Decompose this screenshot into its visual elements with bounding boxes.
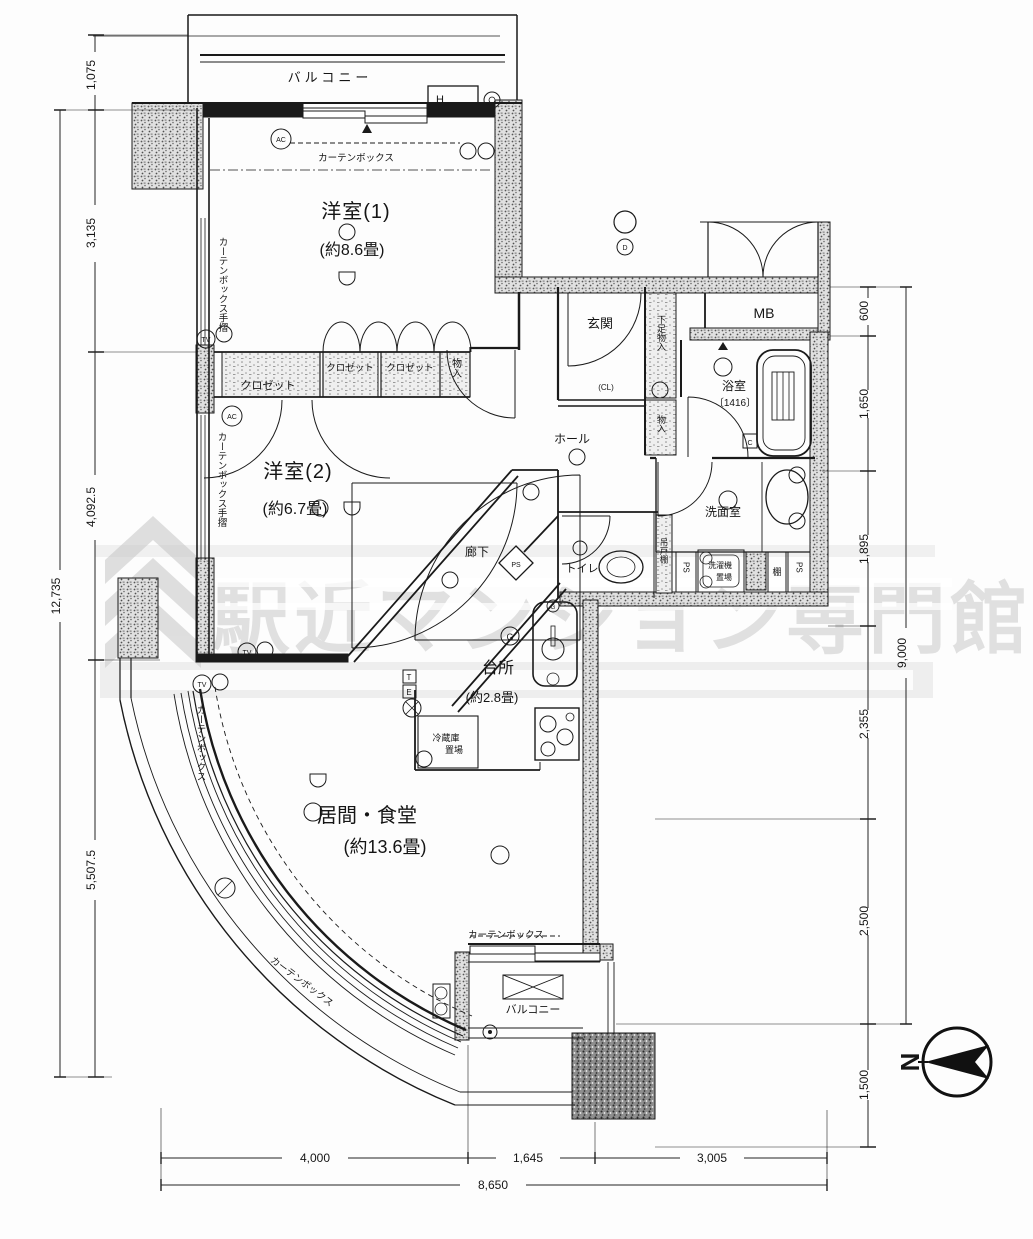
wall-washroom-bottom (560, 592, 828, 606)
watermark: 駅近マンション専門館 (95, 516, 1032, 698)
dim-bottom-total: 8,650 (478, 1178, 508, 1192)
shower-icon (714, 358, 732, 376)
closet-c-label: クロゼット (386, 362, 434, 374)
dim-right-0: 600 (857, 301, 871, 321)
h-letter: H (436, 94, 444, 106)
closet-b-body (323, 352, 378, 397)
hall-label: ホール (554, 432, 590, 446)
t-letter: T (407, 673, 412, 682)
g-letter: G (506, 632, 513, 642)
dim-right-total: 9,000 (895, 638, 909, 668)
closet-b-label: クロゼット (326, 362, 374, 374)
hatched-block (572, 1033, 655, 1119)
toilet-label: トイレ (566, 563, 599, 575)
north-letter: N (895, 1053, 925, 1072)
bath-label: 浴室 (722, 378, 746, 393)
compass: N (895, 1028, 991, 1096)
wall-top-entrance (495, 277, 828, 293)
dim-right-1: 1,650 (857, 389, 871, 419)
shelf-label: 棚 (772, 566, 781, 577)
wall-right-outer (818, 222, 830, 332)
ps-diamond-label: PS (511, 562, 521, 569)
watermark-band-knockout (120, 670, 913, 690)
dim-bottom-0: 4,000 (300, 1151, 330, 1165)
tv-letter: TV (198, 682, 207, 689)
dim-right-2: 1,895 (857, 534, 871, 564)
kitchen-size-label: (約2.8畳) (466, 690, 519, 705)
living-label: 居間・食堂 (317, 804, 417, 827)
floor-plan-page: 駅近マンション専門館 (0, 0, 1033, 1239)
dim-right-4: 2,500 (857, 906, 871, 936)
wall-segment (746, 552, 766, 590)
hanging-shelf-label: 吊戸棚 (659, 538, 669, 564)
ps-label: PS (682, 562, 691, 573)
wall-pier (132, 103, 203, 189)
wall-pier (495, 100, 522, 292)
c-letter: C (747, 440, 752, 447)
fridge-label-line1: 冷蔵庫 (432, 732, 459, 743)
bath-size-label: 〔1416〕 (714, 397, 756, 409)
corridor-label: 廊下 (465, 544, 489, 559)
watermark-stripe (212, 578, 952, 587)
dim-bottom-1: 1,645 (513, 1151, 543, 1165)
mb-label: MB (754, 305, 775, 321)
dim-left-3: 5,507.5 (84, 850, 98, 890)
kitchen-label: 台所 (482, 659, 514, 677)
washroom-door (658, 462, 712, 516)
laundry-label-line1: 洗濯機 (708, 560, 732, 570)
tv-letter: TV (202, 337, 211, 344)
ps-label: PS (795, 562, 804, 573)
closet-c-body (381, 352, 440, 397)
curtain-box-top-label: カーテンボックス (318, 153, 394, 164)
wall-pier (196, 558, 214, 658)
storage-lower-label: 物入 (656, 414, 666, 433)
d-letter: D (622, 245, 627, 252)
dim-left-0: 1,075 (84, 60, 98, 90)
curtain-box-rail-label: カーテンボックス手摺 (216, 432, 228, 528)
fridge-label-line2: 置場 (445, 744, 463, 755)
shoe-storage-label: 下足物入 (656, 315, 666, 351)
bathtub (757, 350, 811, 456)
ac-letter: AC (227, 414, 237, 421)
laundry-label-line2: 置場 (716, 572, 732, 582)
north-arrow-icon (925, 1045, 989, 1079)
dim-bottom-2: 3,005 (697, 1151, 727, 1165)
closet-a-label: クロゼット (241, 379, 296, 392)
dim-right-5: 1,500 (857, 1070, 871, 1100)
room2-label: 洋室(2) (263, 460, 332, 483)
light-marker (339, 272, 355, 285)
storage-top-label: 物入 (450, 357, 462, 378)
e-letter: E (406, 688, 411, 697)
watermark-text: 駅近マンション専門館 (212, 575, 1032, 663)
curtain-box-curve-label: カーテンボックス (195, 705, 207, 781)
washroom-label: 洗面室 (705, 504, 741, 519)
dim-left-1: 3,135 (84, 218, 98, 248)
balcony-bottom-label: バルコニー (506, 1003, 561, 1016)
dim-left-2: 4,092.5 (84, 487, 98, 527)
balcony-top-label: バルコニー (288, 70, 373, 85)
cl-label: (CL) (598, 383, 614, 392)
ac-letter: AC (276, 137, 286, 144)
g-letter: G (551, 605, 556, 611)
dim-left-total: 12,735 (49, 577, 63, 614)
curtain-box-rail-label: カーテンボックス手摺 (217, 237, 229, 333)
dim-right-3: 2,355 (857, 709, 871, 739)
curtain-box-diagonal-label: カーテンボックス (268, 955, 335, 1009)
wall-mb-bottom (690, 328, 830, 340)
curtain-box-bottom-label: カーテンボックス (468, 930, 544, 941)
vanity-counter (766, 470, 808, 524)
room1-size-label: (約8.6畳) (320, 241, 385, 259)
closet-bifold-doors (323, 322, 471, 352)
wall-pier (196, 345, 214, 413)
room2-size-label: (約6.7畳) (263, 500, 328, 518)
triangle-marker (362, 124, 372, 133)
living-size-label: (約13.6畳) (343, 837, 426, 857)
wall-right-outer (810, 332, 828, 604)
floor-plan-drawing: 駅近マンション専門館 (0, 0, 1033, 1239)
entrance-label: 玄関 (587, 316, 613, 331)
light-marker (310, 774, 326, 787)
tv-letter: TV (243, 650, 252, 657)
room1-label: 洋室(1) (321, 200, 390, 223)
wall-kitchen-right (583, 600, 598, 950)
wall-pier (118, 578, 158, 658)
